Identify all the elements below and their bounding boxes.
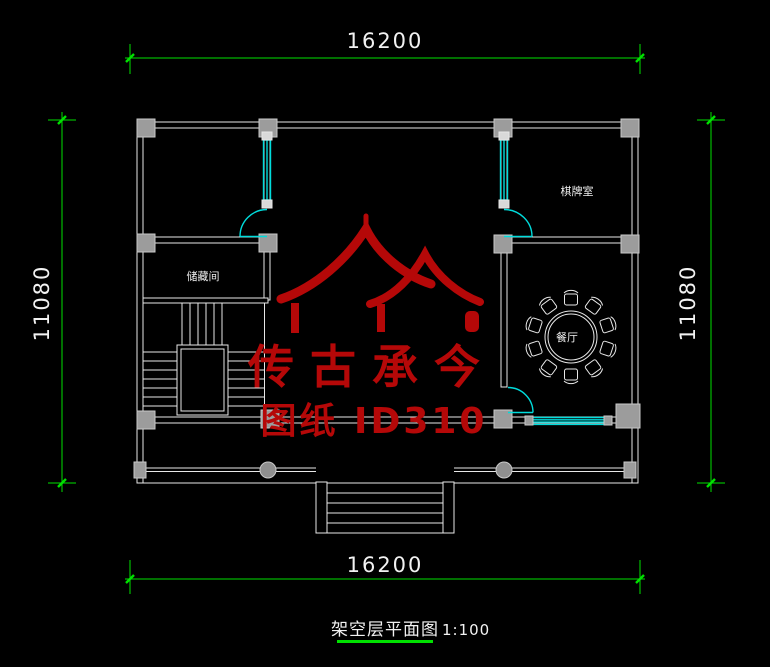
porch-column-left (260, 462, 276, 478)
dim-left-value: 11080 (30, 265, 54, 342)
door-dining-room (508, 388, 533, 413)
window-hall-right (499, 132, 509, 208)
watermark: 传古承今 图纸 ID310 (247, 216, 496, 442)
room-label-chess: 棋牌室 (561, 184, 594, 198)
drawing-title: 架空层平面图 (331, 620, 439, 640)
wall-dining-left (501, 243, 507, 387)
door-chess-room (504, 210, 532, 237)
dimension-right: 11080 (676, 112, 725, 492)
dim-top-value: 16200 (347, 29, 424, 53)
dimension-top: 16200 (125, 29, 645, 74)
room-label-storage: 储藏间 (187, 269, 220, 283)
porch-column-right (496, 462, 512, 478)
window-hall-left (262, 132, 272, 208)
dim-right-value: 11080 (676, 265, 700, 342)
title-underline (337, 640, 433, 643)
door-storage-hall (240, 210, 267, 237)
wall-top (137, 122, 638, 128)
porch (137, 468, 638, 533)
dimension-bottom: 16200 (125, 553, 645, 594)
title-block: 架空层平面图 1:100 (331, 620, 490, 643)
watermark-sheet-id: 图纸 ID310 (261, 401, 488, 442)
drawing-scale: 1:100 (442, 621, 490, 639)
wall-right (632, 122, 638, 483)
watermark-roof-logo (281, 216, 480, 333)
entry-steps (316, 482, 454, 533)
wall-storage-top (143, 237, 265, 243)
cad-floorplan-canvas: 16200 16200 11080 11080 (0, 0, 770, 667)
wall-stair-top (143, 298, 268, 303)
watermark-brand-text: 传古承今 (247, 340, 496, 394)
room-label-dining: 餐厅 (556, 330, 578, 344)
dimension-left: 11080 (30, 112, 76, 492)
wall-chess-dining-divider (506, 237, 632, 243)
floorplan-drawing: 16200 16200 11080 11080 (0, 0, 770, 667)
staircase (143, 303, 265, 415)
wall-hall-left-lower (264, 252, 270, 300)
dim-bottom-value: 16200 (347, 553, 424, 577)
